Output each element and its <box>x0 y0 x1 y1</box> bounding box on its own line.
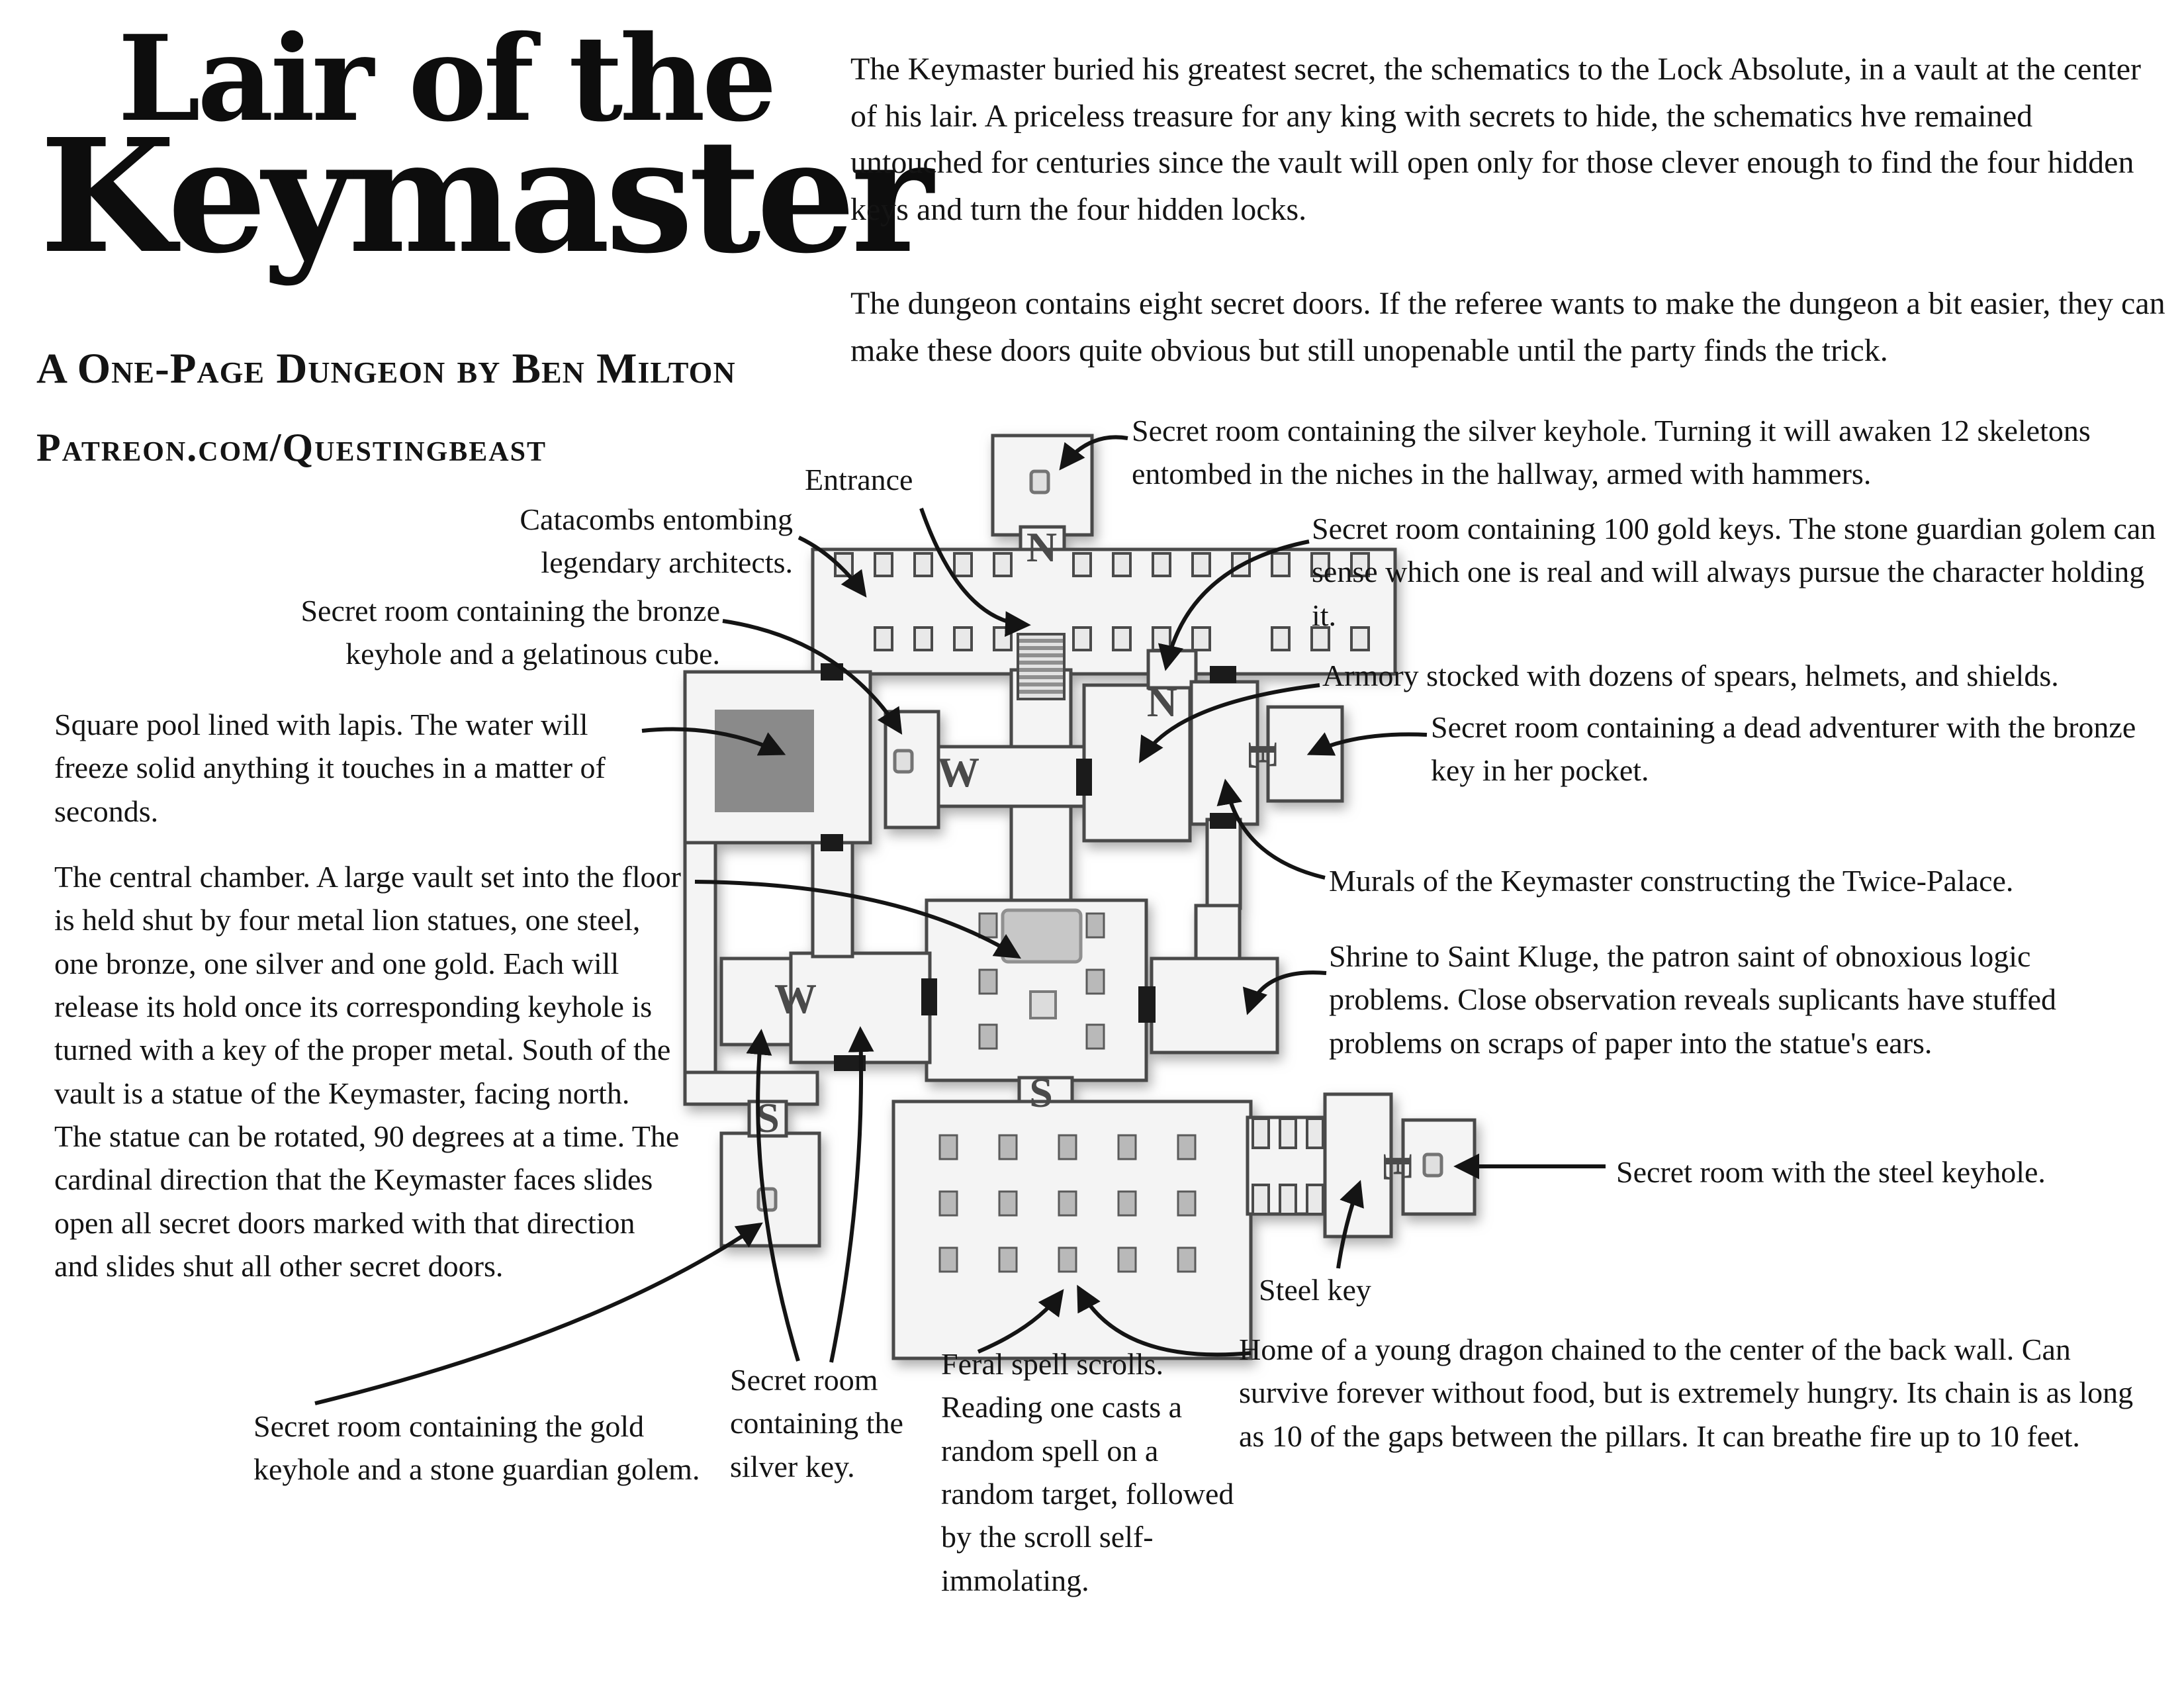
secret-door-e2: E <box>1375 1154 1422 1182</box>
door-chamber-west <box>921 978 937 1015</box>
secret-door-s1: S <box>1029 1069 1053 1116</box>
label-gold-keys: Secret room containing 100 gold keys. Th… <box>1312 507 2159 637</box>
pool-south-connector <box>813 843 852 957</box>
label-armory: Armory stocked with dozens of spears, he… <box>1322 654 2059 697</box>
secret-door-e1: E <box>1240 742 1287 771</box>
silver-keyhole-icon <box>1031 471 1048 492</box>
secret-door-n2: N <box>1147 679 1177 726</box>
gold-keyhole-icon <box>758 1189 776 1210</box>
label-silver-key: Secret room containing the silver key. <box>730 1358 936 1488</box>
label-entrance: Entrance <box>805 458 913 501</box>
door-pool-south <box>821 834 843 851</box>
secret-door-w1: W <box>937 749 979 796</box>
room-shrine <box>1152 959 1277 1053</box>
label-bronze-keyhole: Secret room containing the bronze keyhol… <box>278 589 720 676</box>
lapis-pool <box>715 710 814 812</box>
label-steel-keyhole: Secret room with the steel keyhole. <box>1616 1150 2046 1194</box>
label-murals: Murals of the Keymaster constructing the… <box>1329 859 2013 902</box>
label-dragon: Home of a young dragon chained to the ce… <box>1239 1328 2165 1458</box>
secret-door-n1: N <box>1026 524 1057 571</box>
secret-door-w2: W <box>774 975 817 1022</box>
label-catacombs: Catacombs entombing legendary architects… <box>477 498 793 585</box>
label-steel-key: Steel key <box>1259 1268 1371 1311</box>
label-shrine: Shrine to Saint Kluge, the patron saint … <box>1329 935 2123 1064</box>
door-chamber-shrine <box>1138 986 1156 1023</box>
label-feral-scrolls: Feral spell scrolls. Reading one casts a… <box>941 1342 1247 1602</box>
murals-hallway-lower <box>1207 820 1240 908</box>
door-catacombs-murals <box>1210 666 1236 683</box>
entrance-stairs <box>1018 634 1064 699</box>
keymaster-statue <box>1030 992 1056 1018</box>
steel-keyhole-icon <box>1424 1154 1441 1176</box>
label-silver-keyhole: Secret room containing the silver keyhol… <box>1132 409 2111 496</box>
label-pool: Square pool lined with lapis. The water … <box>54 703 650 833</box>
shrine-passage <box>1196 906 1240 961</box>
catacombs-hallway <box>813 549 1395 674</box>
one-page-dungeon: Lair of the Keymaster A One-Page Dungeon… <box>0 0 2184 1688</box>
left-corridor-band <box>685 1072 817 1104</box>
arrow-silver-key-b <box>831 1030 861 1362</box>
door-armory-west <box>1076 759 1092 796</box>
label-gold-keyhole: Secret room containing the gold keyhole … <box>253 1405 743 1491</box>
label-central-chamber: The central chamber. A large vault set i… <box>54 855 683 1288</box>
label-dead-adventurer: Secret room containing a dead adventurer… <box>1431 706 2152 792</box>
bronze-keyhole-icon <box>895 751 912 772</box>
door-murals-mid <box>1210 813 1236 829</box>
